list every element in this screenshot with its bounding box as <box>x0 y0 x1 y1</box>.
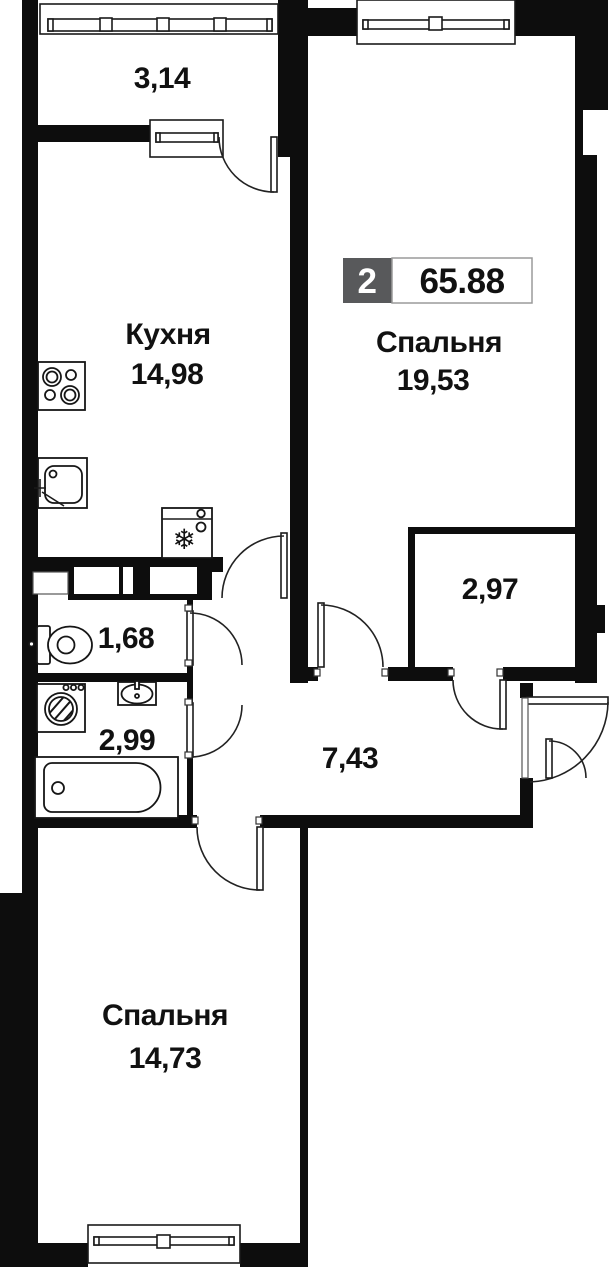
doors-layer <box>185 137 608 890</box>
walls-layer <box>0 0 608 1267</box>
badge-total-area: 65.88 <box>419 262 504 301</box>
washing-machine-icon <box>37 684 85 732</box>
balcony-area-label: 3,14 <box>134 62 191 95</box>
bedroom1-area-label: 19,53 <box>397 364 470 397</box>
door-jambs <box>185 605 503 824</box>
bedroom2-area-label: 14,73 <box>129 1042 202 1075</box>
fridge-icon: ❄ <box>162 508 212 558</box>
bedroom1-window <box>357 0 515 44</box>
kitchen-sink-icon <box>34 458 87 508</box>
bedroom1-door <box>318 603 383 667</box>
entrance-door <box>530 702 608 782</box>
floor-plan: ❄ <box>0 0 611 1267</box>
stove-icon <box>38 362 85 410</box>
wc-area-label: 1,68 <box>98 622 154 655</box>
kitchen-door <box>222 533 287 598</box>
area-badge: 2 65.88 <box>343 258 532 303</box>
hallway-area-label: 7,43 <box>322 742 378 775</box>
badge-rooms-count: 2 <box>358 262 377 301</box>
bedroom2-name-label: Спальня <box>102 999 228 1032</box>
bedroom1-name-label: Спальня <box>376 326 502 359</box>
kitchen-name-label: Кухня <box>125 318 210 351</box>
bedroom2-door <box>197 827 263 890</box>
closet-door <box>453 680 506 729</box>
snowflake-icon: ❄ <box>173 523 196 556</box>
bathroom-area-label: 2,99 <box>99 724 155 757</box>
balcony-window <box>40 4 278 34</box>
entrance-threshold <box>522 698 528 778</box>
balcony-door <box>219 137 277 192</box>
vestibule-wall-line <box>527 697 608 704</box>
wc-door <box>187 611 242 665</box>
bedroom2-window <box>88 1225 240 1263</box>
toilet-icon <box>29 626 92 664</box>
balcony-door-window <box>150 120 223 157</box>
closet-area-label: 2,97 <box>462 573 518 606</box>
kitchen-area-label: 14,98 <box>131 358 204 391</box>
washbasin-icon <box>118 681 156 705</box>
bathtub-icon <box>35 757 178 818</box>
bathroom-door <box>187 703 242 757</box>
floor-plan-canvas: ❄ <box>0 0 611 1267</box>
